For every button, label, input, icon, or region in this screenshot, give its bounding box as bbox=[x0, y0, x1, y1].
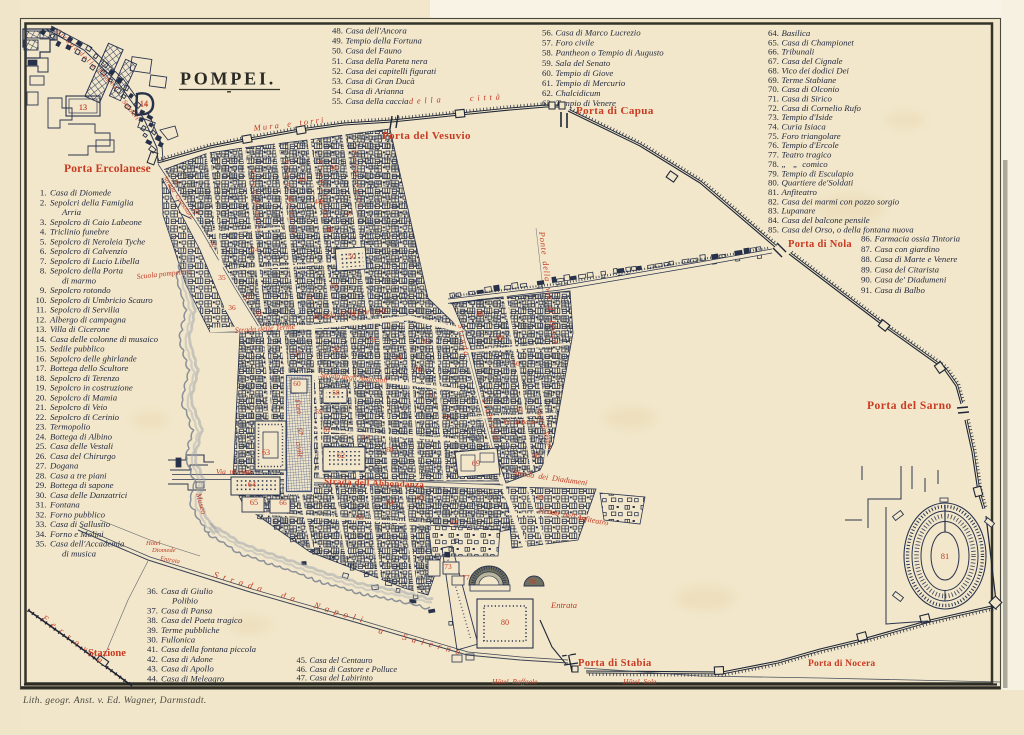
svg-text:90: 90 bbox=[532, 451, 540, 460]
svg-text:Tempio di Mercurio: Tempio di Mercurio bbox=[556, 78, 626, 88]
svg-text:c i t t à: c i t t à bbox=[470, 91, 501, 103]
svg-text:62.: 62. bbox=[542, 88, 553, 98]
svg-text:13.: 13. bbox=[36, 324, 47, 334]
svg-text:Fontana: Fontana bbox=[49, 500, 80, 510]
svg-text:1.: 1. bbox=[40, 188, 47, 198]
svg-text:33: 33 bbox=[209, 240, 217, 249]
svg-text:77: 77 bbox=[462, 573, 470, 582]
svg-text:18.: 18. bbox=[36, 373, 47, 383]
svg-text:Casa di Pansa: Casa di Pansa bbox=[161, 605, 213, 615]
svg-text:Sedile pubblico: Sedile pubblico bbox=[50, 344, 105, 354]
svg-text:80: 80 bbox=[501, 618, 509, 627]
svg-text:43.: 43. bbox=[147, 664, 158, 674]
svg-text:Tempio di Giove: Tempio di Giove bbox=[556, 68, 614, 78]
svg-text:51: 51 bbox=[306, 293, 314, 302]
svg-text:Casa di Castore e Polluce: Casa di Castore e Polluce bbox=[310, 665, 398, 674]
svg-text:di musica: di musica bbox=[62, 548, 97, 558]
svg-text:41.: 41. bbox=[147, 644, 158, 654]
svg-text:Sepolcro di Veio: Sepolcro di Veio bbox=[50, 402, 108, 412]
svg-text:71: 71 bbox=[428, 391, 436, 400]
svg-text:Polibio: Polibio bbox=[171, 596, 199, 606]
svg-text:35: 35 bbox=[218, 273, 226, 282]
svg-text:Casa di Arianna: Casa di Arianna bbox=[346, 86, 405, 96]
svg-text:62: 62 bbox=[337, 451, 345, 460]
svg-text:Via marina: Via marina bbox=[216, 467, 252, 476]
svg-text:37.: 37. bbox=[147, 605, 158, 615]
svg-text:44.: 44. bbox=[147, 673, 158, 683]
svg-text:83: 83 bbox=[416, 493, 424, 502]
svg-text:53: 53 bbox=[368, 335, 376, 344]
svg-text:Casa de' Diadumeni: Casa de' Diadumeni bbox=[875, 275, 947, 285]
svg-text:Casa di Marte e Venere: Casa di Marte e Venere bbox=[875, 254, 958, 264]
svg-text:31: 31 bbox=[294, 348, 302, 357]
svg-text:35.: 35. bbox=[36, 539, 47, 549]
svg-text:9.: 9. bbox=[40, 285, 47, 295]
svg-text:Sepolcro di Servilia: Sepolcro di Servilia bbox=[50, 305, 120, 315]
svg-text:Porta di Capua: Porta di Capua bbox=[576, 105, 654, 117]
svg-text:Hôtel Sole: Hôtel Sole bbox=[622, 677, 657, 686]
svg-text:Casa delle colonne di musaico: Casa delle colonne di musaico bbox=[50, 334, 159, 344]
svg-text:29.: 29. bbox=[36, 480, 47, 490]
svg-text:Casa delle Vestali: Casa delle Vestali bbox=[50, 441, 114, 451]
svg-text:Sepolcro di Caio Labeone: Sepolcro di Caio Labeone bbox=[50, 217, 142, 227]
svg-text:Foro civile: Foro civile bbox=[555, 38, 595, 48]
svg-text:3.: 3. bbox=[40, 217, 47, 227]
svg-text:Casa con giardino: Casa con giardino bbox=[875, 244, 941, 254]
svg-text:33.: 33. bbox=[36, 519, 47, 529]
svg-text:7.: 7. bbox=[40, 256, 47, 266]
svg-text:49: 49 bbox=[496, 333, 504, 342]
svg-text:Porta del Sarno: Porta del Sarno bbox=[867, 400, 952, 412]
svg-text:Lith. geogr. Anst. v. Ed. Wagn: Lith. geogr. Anst. v. Ed. Wagner, Darmst… bbox=[22, 695, 207, 706]
svg-text:Casa di Marco Lucrezio: Casa di Marco Lucrezio bbox=[556, 28, 642, 38]
svg-text:24: 24 bbox=[251, 245, 259, 254]
svg-text:Casa di Apollo: Casa di Apollo bbox=[161, 664, 214, 674]
svg-text:60: 60 bbox=[293, 379, 301, 388]
svg-text:12.: 12. bbox=[36, 314, 47, 324]
svg-text:45: 45 bbox=[330, 163, 338, 172]
svg-text:88.: 88. bbox=[861, 254, 872, 264]
svg-text:61.: 61. bbox=[542, 78, 553, 88]
svg-text:Porta del Vesuvio: Porta del Vesuvio bbox=[382, 130, 471, 142]
svg-text:58: 58 bbox=[332, 388, 340, 397]
svg-text:85: 85 bbox=[356, 513, 364, 522]
svg-text:61: 61 bbox=[323, 425, 331, 434]
svg-text:47.: 47. bbox=[297, 674, 307, 683]
svg-text:d e l l a: d e l l a bbox=[409, 94, 442, 106]
svg-text:51.: 51. bbox=[332, 56, 343, 66]
svg-text:Vic. di Balbo: Vic. di Balbo bbox=[503, 419, 537, 426]
svg-text:Termopolio: Termopolio bbox=[50, 422, 91, 432]
svg-text:91.: 91. bbox=[861, 285, 872, 295]
svg-text:Fullonica: Fullonica bbox=[160, 635, 196, 645]
svg-text:Sepolcro di Mamia: Sepolcro di Mamia bbox=[50, 392, 118, 402]
svg-text:Chalcidicum: Chalcidicum bbox=[556, 88, 601, 98]
svg-text:Casa dell'Accademia: Casa dell'Accademia bbox=[50, 539, 125, 549]
svg-text:24.: 24. bbox=[36, 431, 47, 441]
svg-text:Diomede: Diomede bbox=[151, 547, 176, 554]
svg-text:30.: 30. bbox=[36, 490, 47, 500]
svg-text:84: 84 bbox=[386, 498, 394, 507]
svg-text:49.: 49. bbox=[332, 36, 343, 46]
svg-text:78: 78 bbox=[528, 577, 536, 586]
svg-text:70: 70 bbox=[414, 365, 422, 374]
svg-text:Casa del Chirurgo: Casa del Chirurgo bbox=[50, 451, 116, 461]
svg-text:Sepolcro di Terenzo: Sepolcro di Terenzo bbox=[50, 373, 120, 383]
svg-text:Dogana: Dogana bbox=[49, 461, 79, 471]
svg-text:56.: 56. bbox=[542, 28, 553, 38]
svg-text:64: 64 bbox=[248, 480, 256, 489]
svg-text:67: 67 bbox=[362, 433, 370, 442]
svg-text:Casa di Diomede: Casa di Diomede bbox=[50, 188, 111, 198]
svg-text:59: 59 bbox=[315, 407, 323, 416]
svg-text:37: 37 bbox=[243, 293, 251, 302]
svg-text:46.: 46. bbox=[297, 665, 307, 674]
svg-text:Casa della Pareta nera: Casa della Pareta nera bbox=[346, 56, 429, 66]
svg-text:66: 66 bbox=[279, 498, 287, 507]
svg-text:Casa a tre piani: Casa a tre piani bbox=[50, 470, 107, 480]
svg-text:Triclinio funebre: Triclinio funebre bbox=[50, 227, 109, 237]
svg-text:73: 73 bbox=[444, 562, 452, 571]
svg-text:Porta di Stabia: Porta di Stabia bbox=[578, 658, 652, 669]
svg-text:89.: 89. bbox=[861, 264, 872, 274]
svg-text:25: 25 bbox=[192, 207, 200, 216]
svg-text:Sepolcro di Lucio Libella: Sepolcro di Lucio Libella bbox=[50, 256, 140, 266]
svg-text:56: 56 bbox=[512, 359, 520, 368]
svg-text:5.: 5. bbox=[40, 236, 47, 246]
svg-text:46: 46 bbox=[326, 225, 334, 234]
svg-text:42.: 42. bbox=[147, 654, 158, 664]
svg-text:Sepolcro delle ghirlande: Sepolcro delle ghirlande bbox=[50, 353, 137, 363]
svg-text:Entrata: Entrata bbox=[550, 600, 577, 610]
svg-text:27.: 27. bbox=[36, 461, 47, 471]
svg-text:Albergo di campagna: Albergo di campagna bbox=[49, 314, 127, 324]
svg-text:39: 39 bbox=[254, 309, 262, 318]
svg-text:Sepolcro di Calvenzio: Sepolcro di Calvenzio bbox=[50, 246, 128, 256]
svg-text:57.: 57. bbox=[542, 38, 553, 48]
svg-text:81: 81 bbox=[941, 551, 950, 561]
svg-text:60.: 60. bbox=[542, 68, 553, 78]
svg-text:19.: 19. bbox=[36, 383, 47, 393]
svg-text:25.: 25. bbox=[36, 441, 47, 451]
svg-text:86.: 86. bbox=[861, 234, 872, 244]
svg-text:90.: 90. bbox=[861, 275, 872, 285]
svg-text:Casa dei capitelli figurati: Casa dei capitelli figurati bbox=[346, 66, 437, 76]
svg-text:Porta di Nocera: Porta di Nocera bbox=[808, 659, 875, 669]
svg-text:26.: 26. bbox=[36, 451, 47, 461]
svg-text:8.: 8. bbox=[40, 266, 47, 276]
svg-text:55.: 55. bbox=[332, 96, 343, 106]
svg-text:30.: 30. bbox=[147, 635, 158, 645]
svg-text:22.: 22. bbox=[36, 412, 47, 422]
svg-text:2.: 2. bbox=[40, 197, 47, 207]
svg-text:17.: 17. bbox=[36, 363, 47, 373]
svg-text:48: 48 bbox=[476, 309, 484, 318]
svg-text:82: 82 bbox=[450, 518, 458, 527]
svg-text:63: 63 bbox=[262, 448, 270, 457]
svg-text:39.: 39. bbox=[147, 625, 158, 635]
svg-text:4.: 4. bbox=[40, 227, 47, 237]
svg-text:43: 43 bbox=[298, 175, 306, 184]
svg-text:Casa di Balbo: Casa di Balbo bbox=[875, 285, 926, 295]
svg-text:Sepolcro di Cerinio: Sepolcro di Cerinio bbox=[50, 412, 120, 422]
svg-text:Hôtel: Hôtel bbox=[145, 540, 161, 547]
svg-text:Casa di Giulio: Casa di Giulio bbox=[161, 586, 213, 596]
svg-text:Casa di Gran Ducà: Casa di Gran Ducà bbox=[346, 76, 416, 86]
svg-text:59.: 59. bbox=[542, 58, 553, 68]
svg-text:47: 47 bbox=[345, 209, 353, 218]
svg-text:55: 55 bbox=[422, 337, 430, 346]
svg-text:69: 69 bbox=[472, 459, 480, 468]
svg-text:Sepolcro rotondo: Sepolcro rotondo bbox=[50, 285, 111, 295]
svg-text:36: 36 bbox=[228, 303, 236, 312]
svg-text:Casa del Citarista: Casa del Citarista bbox=[875, 264, 940, 274]
svg-text:50: 50 bbox=[348, 252, 356, 261]
svg-text:28.: 28. bbox=[36, 470, 47, 480]
svg-text:16.: 16. bbox=[36, 353, 47, 363]
svg-text:32: 32 bbox=[332, 345, 340, 354]
svg-text:68: 68 bbox=[386, 445, 394, 454]
svg-text:54.: 54. bbox=[332, 86, 343, 96]
svg-text:Casa della fontana piccola: Casa della fontana piccola bbox=[161, 644, 257, 654]
svg-text:Tempio della Fortuna: Tempio della Fortuna bbox=[346, 36, 423, 46]
svg-text:Porta Ercolanese: Porta Ercolanese bbox=[64, 163, 151, 175]
svg-text:87.: 87. bbox=[861, 244, 872, 254]
svg-text:52.: 52. bbox=[332, 66, 343, 76]
svg-text:34.: 34. bbox=[36, 529, 47, 539]
svg-text:31.: 31. bbox=[36, 500, 47, 510]
svg-text:91: 91 bbox=[516, 405, 524, 414]
svg-text:Sepolcro di Umbricio Scauro: Sepolcro di Umbricio Scauro bbox=[50, 295, 153, 305]
svg-text:Sepolcro in costruzione: Sepolcro in costruzione bbox=[50, 383, 133, 393]
svg-text:38.: 38. bbox=[147, 615, 158, 625]
svg-text:72: 72 bbox=[442, 413, 450, 422]
svg-text:Porta di Nola: Porta di Nola bbox=[788, 239, 852, 250]
svg-text:14.: 14. bbox=[36, 334, 47, 344]
svg-text:Sepolcro della Porta: Sepolcro della Porta bbox=[50, 266, 124, 276]
svg-text:POMPEI.: POMPEI. bbox=[180, 69, 276, 89]
svg-text:Casa del Centauro: Casa del Centauro bbox=[310, 656, 373, 665]
svg-text:14: 14 bbox=[140, 99, 148, 108]
svg-text:Casa del Labirinto: Casa del Labirinto bbox=[310, 674, 373, 683]
svg-text:48.: 48. bbox=[332, 26, 343, 36]
svg-text:32.: 32. bbox=[36, 509, 47, 519]
svg-text:Bottega dello Scultore: Bottega dello Scultore bbox=[50, 363, 128, 373]
svg-text:6.: 6. bbox=[40, 246, 47, 256]
svg-text:Sala del Senato: Sala del Senato bbox=[556, 58, 611, 68]
svg-text:Casa dell'Ancora: Casa dell'Ancora bbox=[346, 26, 408, 36]
svg-text:13: 13 bbox=[79, 103, 87, 112]
svg-text:Bottega di sapone: Bottega di sapone bbox=[50, 480, 114, 490]
svg-text:85.: 85. bbox=[768, 224, 779, 234]
svg-text:Forno pubblico: Forno pubblico bbox=[49, 509, 106, 519]
svg-text:36.: 36. bbox=[147, 586, 158, 596]
svg-text:Pantheon o Tempio di Augusto: Pantheon o Tempio di Augusto bbox=[555, 48, 665, 58]
svg-text:54: 54 bbox=[394, 353, 402, 362]
svg-text:58.: 58. bbox=[542, 48, 553, 58]
svg-text:Terme pubbliche: Terme pubbliche bbox=[161, 625, 220, 635]
svg-text:Villa di Cicerone: Villa di Cicerone bbox=[50, 324, 110, 334]
svg-text:10.: 10. bbox=[36, 295, 47, 305]
svg-text:Hôtel Raffaele: Hôtel Raffaele bbox=[491, 677, 538, 686]
svg-text:Casa di Adone: Casa di Adone bbox=[161, 654, 213, 664]
svg-text:Sepolcro di Neroleia Tyche: Sepolcro di Neroleia Tyche bbox=[50, 236, 145, 246]
svg-text:21.: 21. bbox=[36, 402, 47, 412]
svg-text:Bottega di Albino: Bottega di Albino bbox=[50, 431, 113, 441]
svg-text:Casa del Fauno: Casa del Fauno bbox=[346, 46, 403, 56]
svg-text:20.: 20. bbox=[36, 392, 47, 402]
svg-text:Casa del Poeta tragico: Casa del Poeta tragico bbox=[161, 615, 243, 625]
svg-text:65: 65 bbox=[250, 498, 258, 507]
svg-text:Arria: Arria bbox=[61, 207, 82, 217]
svg-text:23.: 23. bbox=[36, 422, 47, 432]
svg-text:11.: 11. bbox=[36, 305, 47, 315]
svg-text:Farmacia ossia Tintoria: Farmacia ossia Tintoria bbox=[874, 234, 961, 244]
svg-text:52: 52 bbox=[330, 281, 338, 290]
svg-text:89: 89 bbox=[536, 493, 544, 502]
svg-text:Sepolcri della Famiglia: Sepolcri della Famiglia bbox=[50, 197, 134, 207]
svg-text:50.: 50. bbox=[332, 46, 343, 56]
svg-text:di marmo: di marmo bbox=[62, 275, 97, 285]
svg-text:15.: 15. bbox=[36, 344, 47, 354]
svg-text:16: 16 bbox=[171, 177, 179, 186]
svg-text:Casa delle Danzatrici: Casa delle Danzatrici bbox=[50, 490, 128, 500]
svg-text:53.: 53. bbox=[332, 76, 343, 86]
svg-text:45.: 45. bbox=[297, 656, 307, 665]
svg-text:44: 44 bbox=[314, 197, 322, 206]
svg-text:Casa di Meleagro: Casa di Meleagro bbox=[161, 673, 225, 683]
svg-text:Casa della caccia: Casa della caccia bbox=[346, 96, 410, 106]
